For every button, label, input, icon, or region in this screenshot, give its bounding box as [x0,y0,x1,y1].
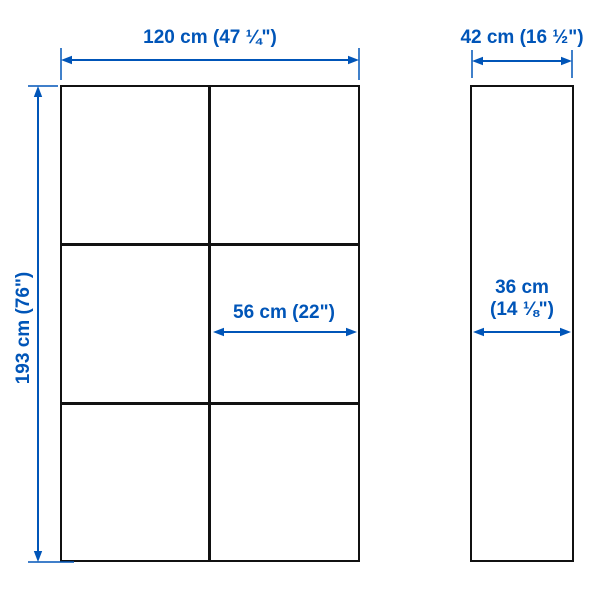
front-height-arrow [24,78,80,570]
side-depth-arrow [466,44,578,84]
front-inner-width-label: 56 cm (22") [210,302,358,324]
front-inner-width-arrow [210,324,360,340]
side-inner-depth-arrow [468,324,576,340]
front-width-arrow [55,44,365,84]
side-inner-depth-label: 36 cm (14 ⅛") [462,277,582,321]
side-inner-depth-label-line2: (14 ⅛") [462,299,582,321]
side-inner-depth-label-line1: 36 cm [462,277,582,299]
front-view-horizontal-divider-2 [62,402,358,405]
front-view-horizontal-divider-1 [62,243,358,246]
dimension-diagram: 120 cm (47 ¼") 193 cm (76") 56 cm (22") [0,0,600,600]
